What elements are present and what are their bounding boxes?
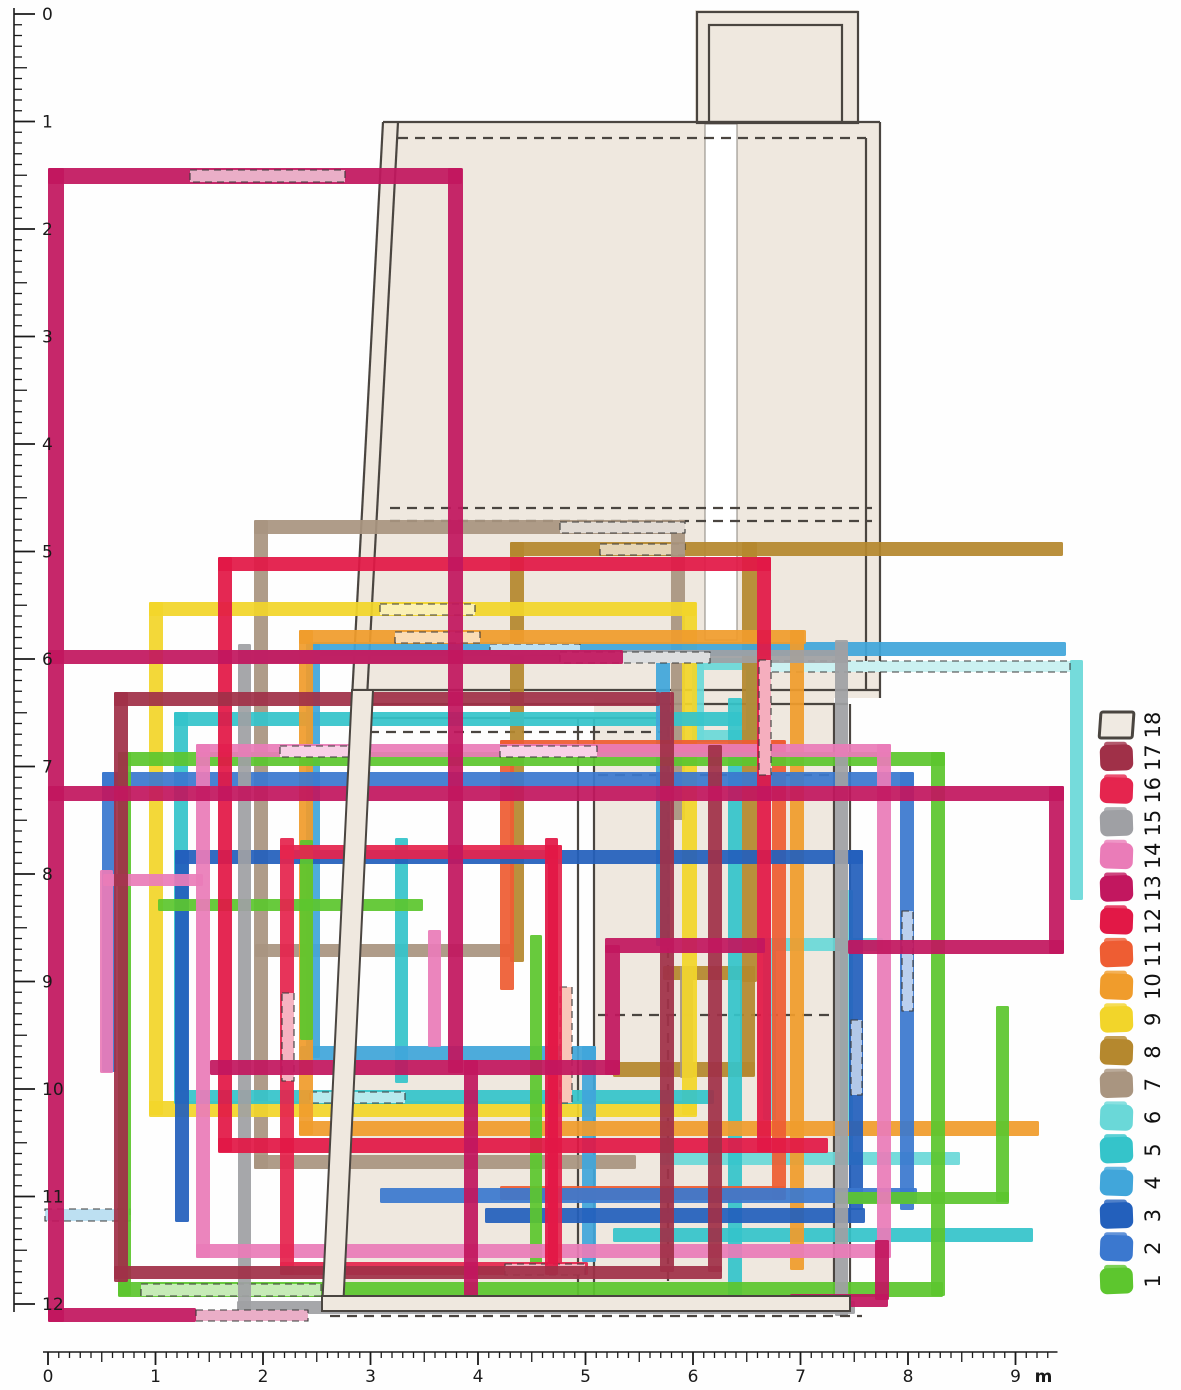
legend-swatch-texture [1104,1265,1127,1271]
legend-swatch-texture [1104,840,1127,846]
legend-item-2: 2 [1100,1232,1165,1262]
phase-13-wall-bar [48,1308,196,1322]
left-ruler-label: 10 [42,1080,64,1100]
bottom-ruler-label: 4 [473,1367,484,1387]
legend-swatch [1100,777,1134,804]
legend-swatch [1100,940,1134,967]
legend-swatch [1100,875,1134,902]
phase-13-wall-bar [875,1240,889,1300]
phase-10-wall-bar [790,630,804,1270]
legend-number: 14 [1141,842,1165,869]
legend-swatch [1100,1104,1134,1131]
left-ruler-label: 8 [42,865,53,885]
phase-13-wall-bar [605,938,765,953]
phase-17-wall-bar [114,692,128,1282]
legend-item-3: 3 [1100,1200,1165,1230]
legend-item-15: 15 [1100,807,1165,837]
legend-swatch-texture [1104,1036,1127,1042]
phase-13-restored-wall-bar [190,170,345,182]
legend-item-13: 13 [1100,873,1165,903]
left-ruler-label: 11 [42,1188,64,1208]
phase-7-restored-wall-bar [560,522,685,533]
phase-13-wall-bar [1049,786,1064,954]
legend-number: 16 [1141,777,1165,804]
legend-swatch-texture [1104,1200,1127,1206]
phase-12-wall-bar [218,557,771,571]
phase-13-wall-bar [48,786,1064,801]
left-ruler-label: 12 [42,1295,64,1315]
legend-swatch-texture [1104,971,1127,977]
phase-plan-drawing: 0123456789101112 0123456789m 18171615141… [0,0,1181,1390]
phase-1-wall-bar [530,935,542,1265]
legend-number: 5 [1141,1143,1165,1156]
legend-swatch [1100,744,1134,771]
legend-swatch-plan [1099,712,1134,738]
legend-swatch [1100,1235,1134,1262]
left-ruler-label: 4 [42,435,53,455]
phase-15-wall-bar [835,640,848,1316]
legend-swatch [1100,1202,1134,1229]
legend-swatch [1100,1169,1134,1196]
phase-1-wall-bar [836,1192,1009,1204]
legend-number: 13 [1141,875,1165,902]
phase-5-restored-wall-bar [310,1092,405,1103]
bottom-ruler-label: 2 [258,1367,269,1387]
legend-number: 12 [1141,908,1165,935]
phase-1-wall-bar [300,840,313,1040]
legend-item-1: 1 [1100,1265,1165,1295]
legend-swatch-texture [1104,774,1127,780]
phase-6-wall-bar [660,1152,960,1165]
legend-number: 18 [1141,712,1165,739]
phase-7-wall-bar [254,1155,636,1169]
legend-swatch [1100,1006,1134,1033]
phase-8-wall-bar [740,966,755,1076]
phase-14-wall-bar [877,744,891,1258]
bottom-ruler-label: 8 [903,1367,914,1387]
bottom-ruler-label: 7 [795,1367,806,1387]
phase-16-wall-bar [280,845,562,859]
phase-2-restored-wall-bar [902,911,913,1011]
phase-12-wall-bar [757,557,771,1152]
legend-swatch [1100,1071,1134,1098]
bottom-scale-ruler: 0123456789m [43,1352,1058,1387]
phase-13-restored-wall-bar [196,1310,308,1321]
phase-plan-figure: 0123456789101112 0123456789m 18171615141… [0,0,1181,1390]
bottom-ruler-label: 1 [150,1367,161,1387]
phase-13-wall-bar [210,1060,620,1075]
phase-1-wall-bar [996,1006,1009,1202]
legend-swatch-texture [1104,1167,1127,1173]
bottom-ruler-label: 3 [365,1367,376,1387]
legend-number: 11 [1141,941,1165,968]
phase-13-wall-bar [48,650,623,664]
phase-1-restored-wall-bar [141,1284,321,1296]
legend-swatch-texture [1104,1134,1127,1140]
legend-swatch-texture [1104,905,1127,911]
bottom-ruler-unit-label: m [1035,1367,1053,1387]
legend-number: 17 [1141,744,1165,771]
phase-5-wall-bar [613,1228,1033,1242]
bottom-ruler-label: 0 [43,1367,54,1387]
legend-swatch [1100,1038,1134,1065]
legend-swatch-texture [1104,1003,1127,1009]
left-ruler-label: 3 [42,328,53,348]
legend-item-14: 14 [1100,840,1165,870]
phase-13-wall-bar [448,168,463,1073]
legend-swatch [1100,842,1134,869]
legend-swatch-texture [1104,938,1127,944]
legend-number: 15 [1141,810,1165,837]
legend-item-16: 16 [1100,774,1165,804]
phase-11-wall-bar [772,740,786,1200]
phase-14-wall-bar [196,744,210,1258]
phase-1-wall-bar [931,752,945,1296]
legend-item-18: 18 [1099,712,1165,739]
left-ruler-label: 5 [42,543,53,563]
legend-number: 3 [1141,1209,1165,1222]
legend-item-11: 11 [1100,938,1165,968]
phase-17-wall-bar [660,692,674,1272]
legend-number: 7 [1141,1078,1165,1091]
legend-swatch [1100,908,1134,935]
phase-3-restored-wall-bar [851,1020,862,1095]
phase-4-wall-bar [582,1046,596,1262]
legend-swatch [1100,973,1134,1000]
phase-legend: 181716151413121110987654321 [1099,712,1165,1295]
legend-item-7: 7 [1100,1069,1165,1099]
phase-10-restored-wall-bar [395,632,480,643]
phase-13-wall-bar [464,1060,478,1312]
legend-item-4: 4 [1100,1167,1165,1197]
legend-swatch-texture [1104,1232,1127,1238]
phase-12-restored-wall-bar [759,660,771,775]
plan-fill [695,10,858,125]
legend-number: 1 [1141,1274,1165,1287]
phase-13-wall-bar [605,945,620,1075]
phase-12-wall-bar [545,838,558,1275]
legend-swatch-texture [1104,742,1127,748]
phase-9-wall-bar [149,602,163,1115]
legend-swatch-texture [1104,873,1127,879]
legend-swatch-texture [1104,1101,1127,1107]
phase-6-wall-bar [1070,660,1083,900]
phase-17-wall-bar [114,1266,722,1279]
legend-number: 10 [1141,973,1165,1000]
left-ruler-label: 1 [42,113,53,133]
bottom-ruler-label: 6 [688,1367,699,1387]
legend-number: 4 [1141,1176,1165,1189]
phase-8-wall-bar [510,542,1063,556]
plan-wall-band [322,1296,850,1311]
phase-14-restored-wall-bar [500,746,597,757]
left-ruler-label: 6 [42,650,53,670]
phase-13-wall-bar [848,940,1064,954]
legend-item-12: 12 [1100,905,1165,935]
phase-17-wall-bar [114,692,660,706]
phase-14-restored-wall-bar [280,746,357,757]
legend-swatch [1100,1267,1134,1294]
legend-item-9: 9 [1100,1003,1165,1033]
phase-12-wall-bar [218,1138,828,1153]
legend-item-17: 17 [1100,742,1165,772]
legend-swatch-texture [1104,1069,1127,1075]
legend-number: 2 [1141,1242,1165,1255]
legend-number: 6 [1141,1111,1165,1124]
legend-swatch [1100,810,1134,837]
legend-swatch-texture [1104,807,1127,813]
left-ruler-label: 2 [42,220,53,240]
phase-5-wall-bar [174,1090,714,1104]
legend-swatch [1100,1137,1134,1164]
legend-item-6: 6 [1100,1101,1165,1131]
phase-14-wall-bar [196,1244,891,1258]
legend-item-5: 5 [1100,1134,1165,1164]
legend-item-8: 8 [1100,1036,1165,1066]
legend-number: 9 [1141,1013,1165,1026]
left-ruler-label: 0 [42,5,53,25]
phase-14-wall-bar [100,870,113,1073]
legend-item-10: 10 [1100,971,1165,1001]
phase-14-wall-bar [428,930,441,1047]
legend-number: 8 [1141,1045,1165,1058]
phase-10-wall-bar [299,630,806,644]
bottom-ruler-label: 5 [580,1367,591,1387]
left-ruler-label: 7 [42,758,53,778]
left-ruler-label: 9 [42,973,53,993]
phase-17-wall-bar [708,745,722,1272]
bottom-ruler-label: 9 [1010,1367,1021,1387]
